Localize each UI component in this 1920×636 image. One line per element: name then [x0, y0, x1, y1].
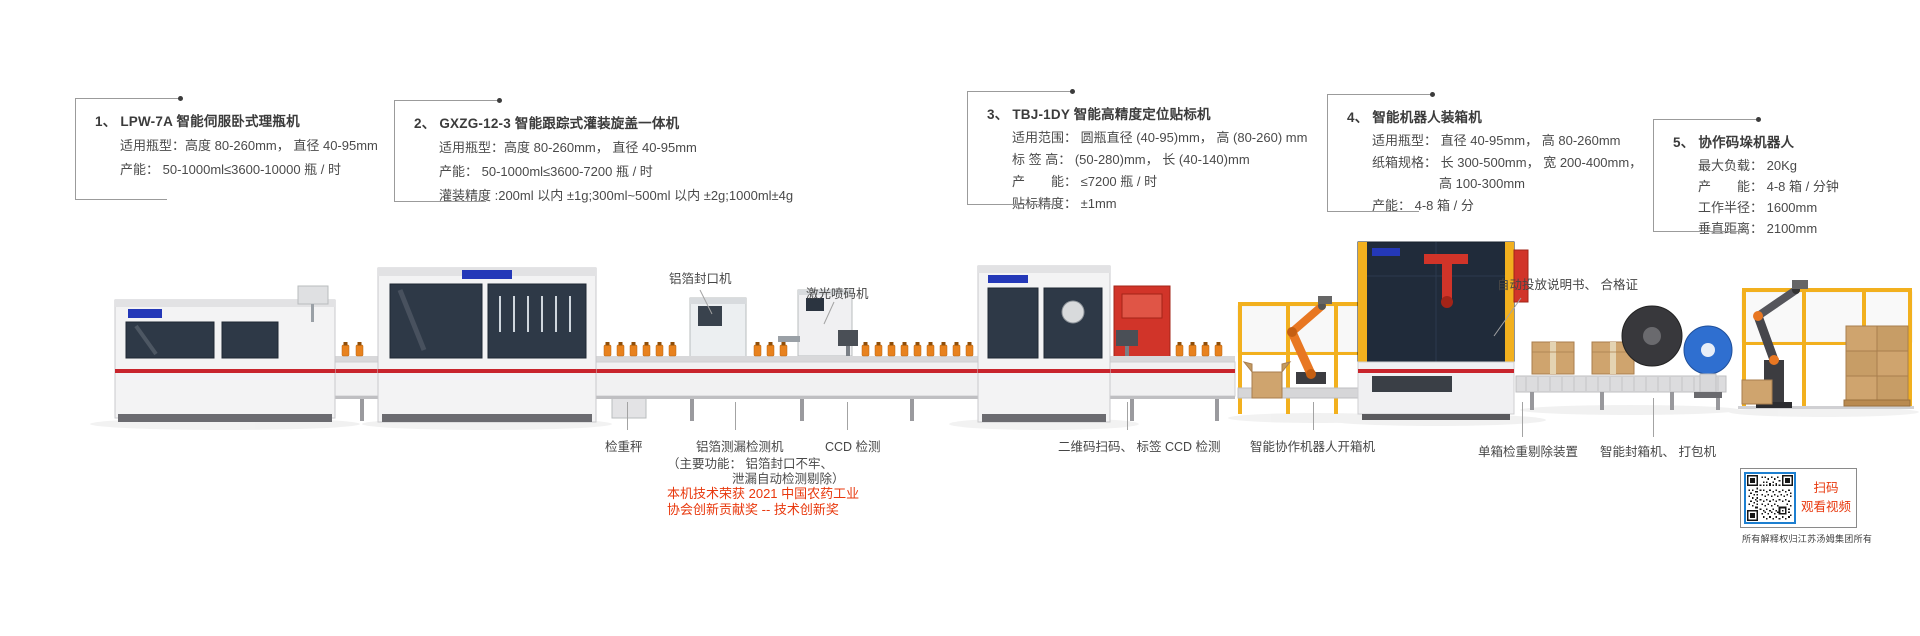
spec-block-3: 3、 TBJ-1DY 智能高精度定位贴标机 适用范围： 圆瓶直径 (40-95)…	[967, 91, 1297, 205]
spec-line: 适用范围： 圆瓶直径 (40-95)mm， 高 (80-260) mm	[967, 127, 1297, 146]
bracket-line	[75, 199, 167, 200]
bracket-line	[967, 91, 968, 205]
label-laser-coder: 激光喷码机	[806, 283, 869, 302]
qr-caption-line-2: 观看视频	[1801, 498, 1851, 517]
spec-line: 适用瓶型：高度 80-260mm， 直径 40-95mm	[75, 135, 385, 154]
bracket-dot	[1070, 89, 1075, 94]
label-checkweigher: 检重秤	[605, 436, 643, 455]
label-single-box-reject: 单箱检重剔除装置	[1478, 441, 1578, 460]
bracket-line	[394, 201, 486, 202]
bracket-line	[1327, 211, 1419, 212]
bracket-line	[75, 98, 181, 99]
foil-sealing-machine	[690, 298, 746, 358]
spec-line: 适用瓶型：高度 80-260mm， 直径 40-95mm	[394, 137, 794, 156]
bracket-line	[394, 100, 395, 202]
production-line-illustration	[0, 0, 1920, 636]
qr-video-panel: 扫码 观看视频	[1740, 468, 1857, 528]
carton-box	[1532, 342, 1574, 374]
leader-carton-opener	[1313, 402, 1314, 430]
spec-line: 产能： 50-1000ml≤3600-10000 瓶 / 时	[75, 159, 385, 178]
bracket-dot	[497, 98, 502, 103]
label-manual-insert: 自动投放说明书、 合格证	[1497, 274, 1638, 293]
copyright-text: 所有解释权归江苏汤姆集团所有	[1742, 532, 1872, 545]
leader-ccd	[847, 402, 848, 430]
spec-line: 产能： 50-1000ml≤3600-7200 瓶 / 时	[394, 161, 794, 180]
spec-line: 垂直距离： 2100mm	[1653, 218, 1903, 237]
bracket-line	[1653, 119, 1654, 232]
bracket-line	[1327, 94, 1433, 95]
leader-foil-leak-detector	[735, 402, 736, 430]
label-sealer-strapper: 智能封箱机、 打包机	[1600, 441, 1716, 460]
bracket-line	[1327, 94, 1328, 212]
bracket-line	[967, 204, 1059, 205]
label-carton-opener: 智能协作机器人开箱机	[1250, 436, 1375, 455]
spec-line: 高 100-300mm	[1327, 173, 1627, 192]
qr-code	[1744, 472, 1796, 524]
spec-line: 标 签 高： (50-280)mm， 长 (40-140)mm	[967, 149, 1297, 168]
label-ccd-inspection: CCD 检测	[825, 436, 881, 455]
qr-caption-line-1: 扫码	[1813, 479, 1838, 498]
bracket-line	[1653, 119, 1759, 120]
spec-line: 纸箱规格： 长 300-500mm， 宽 200-400mm，	[1327, 152, 1627, 171]
spec-block-1-title: 1、 LPW-7A 智能伺服卧式理瓶机	[75, 98, 385, 130]
production-line-poster: 1、 LPW-7A 智能伺服卧式理瓶机 适用瓶型：高度 80-260mm， 直径…	[0, 0, 1920, 636]
machine-bottle-unscrambler	[115, 286, 335, 422]
spec-line: 最大负载： 20Kg	[1653, 155, 1903, 174]
bracket-dot	[178, 96, 183, 101]
spec-block-4-title: 4、 智能机器人装箱机	[1327, 94, 1627, 126]
bracket-line	[75, 98, 76, 200]
bracket-line	[394, 100, 500, 101]
spec-block-2: 2、 GXZG-12-3 智能跟踪式灌装旋盖一体机 适用瓶型：高度 80-260…	[394, 100, 794, 202]
qr-code-pattern	[1747, 475, 1793, 521]
bracket-line	[967, 91, 1073, 92]
spec-block-5-title: 5、 协作码垛机器人	[1653, 119, 1903, 151]
spec-line: 工作半径： 1600mm	[1653, 197, 1903, 216]
machine-labeler	[978, 266, 1110, 422]
palletizing-robot-cell	[1738, 280, 1914, 409]
leader-sealer-strapper	[1653, 398, 1654, 437]
machine-filling-capping	[378, 268, 596, 422]
leader-checkweigher	[627, 402, 628, 430]
machine-case-packer	[1358, 242, 1528, 420]
spec-line: 适用瓶型： 直径 40-95mm， 高 80-260mm	[1327, 130, 1627, 149]
award-text-line-2: 协会创新贡献奖 -- 技术创新奖	[667, 499, 839, 518]
bracket-dot	[1756, 117, 1761, 122]
spec-block-4: 4、 智能机器人装箱机 适用瓶型： 直径 40-95mm， 高 80-260mm…	[1327, 94, 1627, 212]
spec-block-3-title: 3、 TBJ-1DY 智能高精度定位贴标机	[967, 91, 1297, 123]
leader-qr-inspection	[1127, 402, 1128, 430]
spec-line: 产 能： ≤7200 瓶 / 时	[967, 171, 1297, 190]
label-foil-sealer: 铝箔封口机	[669, 268, 732, 287]
spec-line: 贴标精度： ±1mm	[967, 193, 1297, 212]
spec-block-2-title: 2、 GXZG-12-3 智能跟踪式灌装旋盖一体机	[394, 100, 794, 132]
bracket-line	[1653, 231, 1745, 232]
leader-single-box-reject	[1522, 402, 1523, 437]
spec-line: 产 能： 4-8 箱 / 分钟	[1653, 176, 1903, 195]
pallet-stack	[1844, 326, 1910, 406]
spec-block-5: 5、 协作码垛机器人 最大负载： 20Kg 产 能： 4-8 箱 / 分钟 工作…	[1653, 119, 1903, 232]
checkweigher-device	[612, 398, 646, 418]
qr-caption: 扫码 观看视频	[1796, 479, 1856, 517]
label-qr-inspection: 二维码扫码、 标签 CCD 检测	[1058, 436, 1221, 455]
spec-block-1: 1、 LPW-7A 智能伺服卧式理瓶机 适用瓶型：高度 80-260mm， 直径…	[75, 98, 385, 200]
bracket-dot	[1430, 92, 1435, 97]
